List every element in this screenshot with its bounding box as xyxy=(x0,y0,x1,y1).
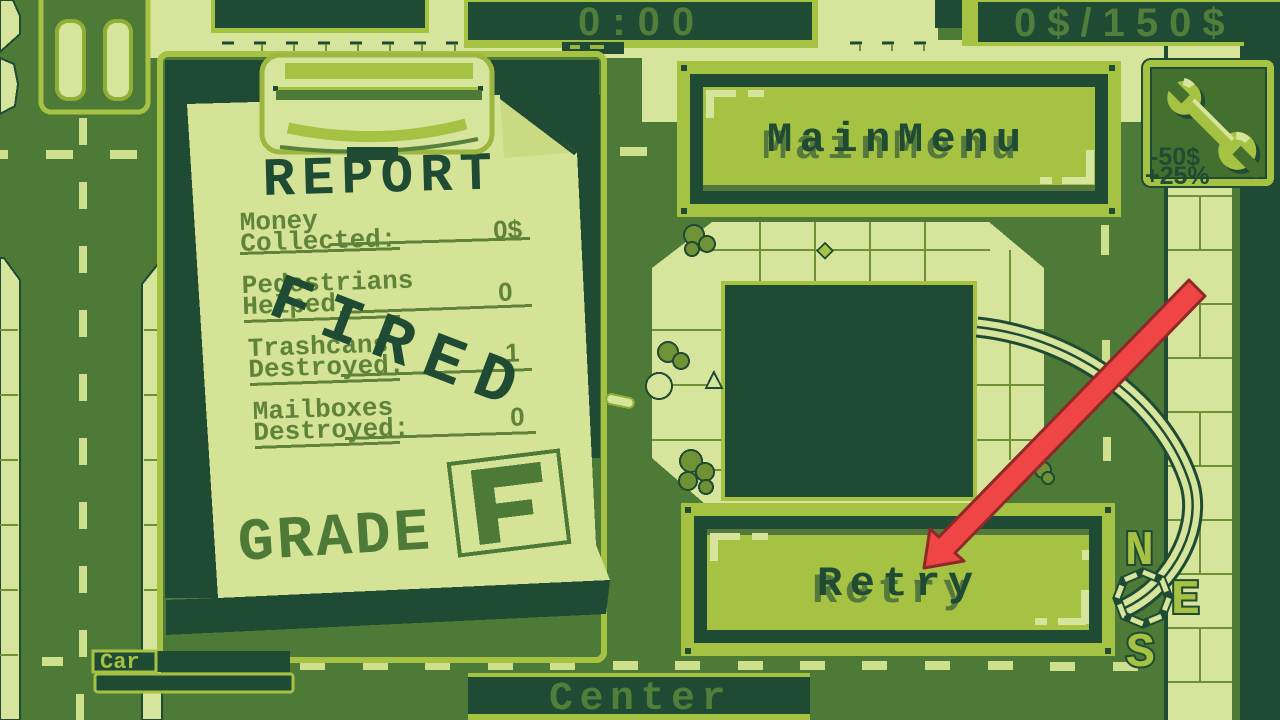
svg-text:S: S xyxy=(1126,627,1155,681)
svg-text:GRADE: GRADE xyxy=(236,499,435,579)
svg-text:+25%: +25% xyxy=(1145,162,1210,190)
svg-text:E: E xyxy=(1171,574,1200,628)
svg-text:Car: Car xyxy=(100,650,140,675)
svg-text:0$/150$: 0$/150$ xyxy=(1014,1,1236,45)
svg-text:N: N xyxy=(1125,525,1154,579)
svg-text:Center: Center xyxy=(549,677,732,720)
svg-text:0:00: 0:00 xyxy=(578,0,706,44)
svg-text:Retry: Retry xyxy=(817,560,981,608)
svg-text:0: 0 xyxy=(498,277,513,307)
svg-text:MainMenu: MainMenu xyxy=(767,116,1029,164)
